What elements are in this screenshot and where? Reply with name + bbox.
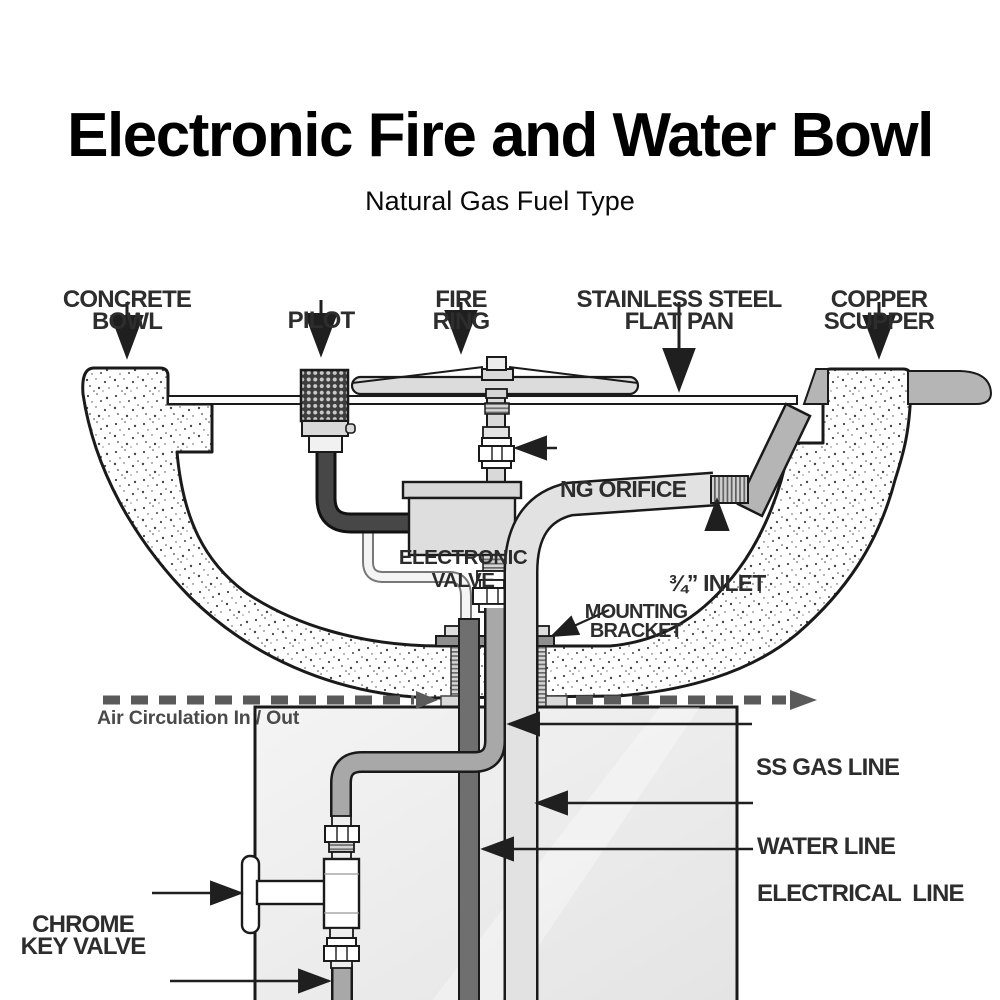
fire-ring-shape [352,357,638,398]
label-mounting-bracket: MOUNTINGBRACKET [585,565,687,660]
label-air-circulation: Air Circulation In / Out [97,672,299,746]
fire-water-bowl-diagram-page: Electronic Fire and Water Bowl Natural G… [0,0,1000,1000]
label-ng-orifice: NG ORIFICE [560,435,686,522]
label-electronic-valve: ELECTRONICVALVE [399,502,527,615]
label-ss-gas-line: SS GAS LINE [756,711,899,802]
label-gas-line: GAS LINE [33,960,140,1000]
pan-thread-joint [485,403,509,414]
flat-pan-sheet [168,396,797,404]
label-pilot: PILOT [288,264,355,355]
electrical-conduit [459,619,479,1000]
label-copper-scupper: COPPERSCUPPER [824,243,934,357]
inlet-thread-fitting [711,476,748,503]
label-concrete-bowl: CONCRETEBOWL [63,243,191,357]
page-subtitle: Natural Gas Fuel Type [365,186,635,217]
label-electrical-line: ELECTRICAL LINE [757,837,964,928]
page-title: Electronic Fire and Water Bowl [67,100,933,171]
label-fire-ring: FIRERING [433,243,490,357]
ng-orifice-fitting [479,427,514,468]
label-stainless-flat-pan: STAINLESS STEELFLAT PAN [577,243,782,357]
pilot-burner [301,370,355,452]
